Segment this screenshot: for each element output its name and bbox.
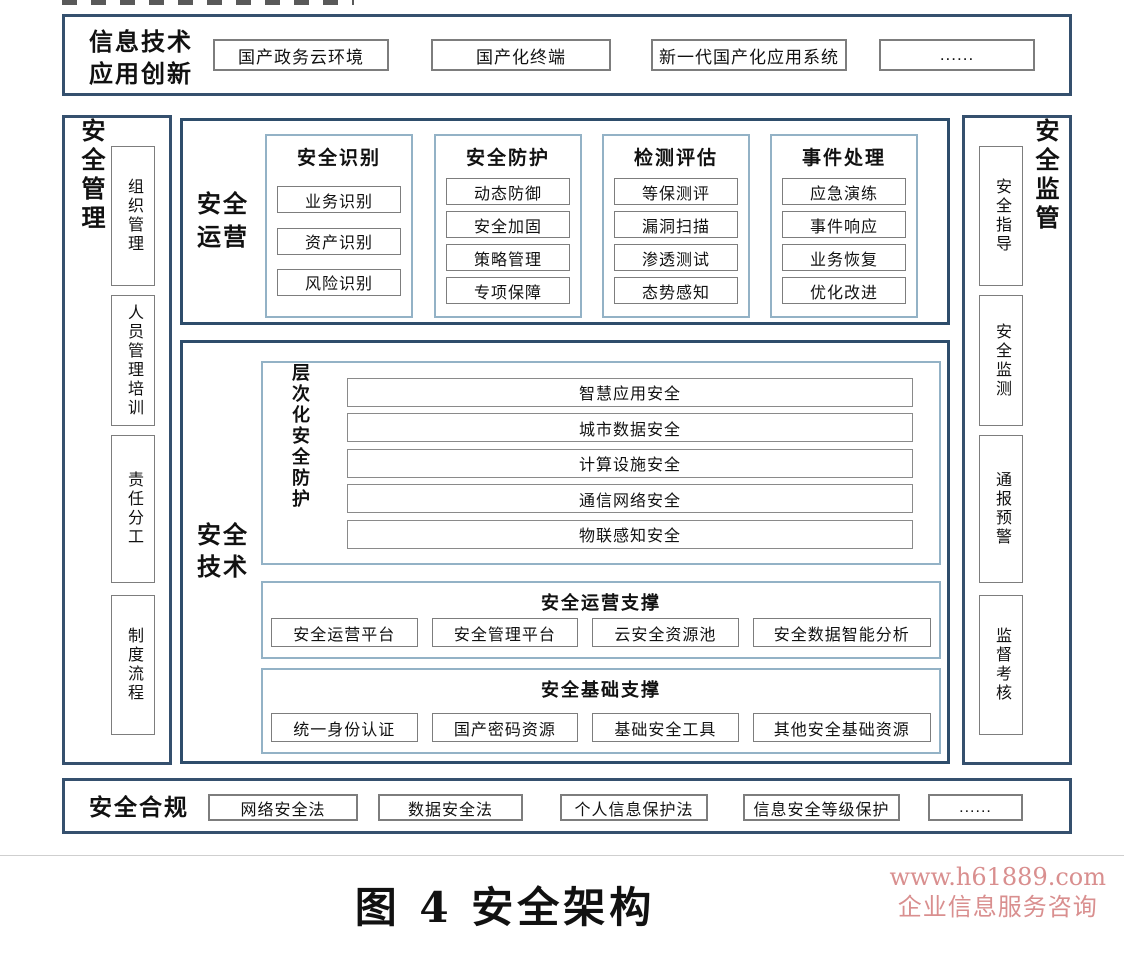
sup-item-monitoring: 安全监测 <box>979 295 1023 426</box>
law-classified-protection: 信息安全等级保护 <box>743 794 900 821</box>
sup-item-guidance: 安全指导 <box>979 146 1023 286</box>
it-item-domestic-terminal: 国产化终端 <box>431 39 611 71</box>
it-item-ellipsis: ...... <box>879 39 1035 71</box>
foundation-item-crypto: 国产密码资源 <box>432 713 579 742</box>
cutoff-text-remnant <box>62 0 354 5</box>
ops-column-assessment: 检测评估 等保测评 漏洞扫描 渗透测试 态势感知 <box>602 134 750 318</box>
ops-item: 等保测评 <box>614 178 738 205</box>
security-operations-panel: 安全 运营 安全识别 业务识别 资产识别 风险识别 安全防护 动态防御 安全加固… <box>180 118 950 325</box>
operation-support-header: 安全运营支撑 <box>263 589 939 615</box>
foundation-support-box: 安全基础支撑 统一身份认证 国产密码资源 基础安全工具 其他安全基础资源 <box>261 668 941 754</box>
mgmt-item-personnel-training: 人员管理培训 <box>111 295 155 426</box>
ops-column-incident: 事件处理 应急演练 事件响应 业务恢复 优化改进 <box>770 134 918 318</box>
ops-item: 风险识别 <box>277 269 401 296</box>
watermark-text: 企业信息服务咨询 <box>890 892 1107 922</box>
security-compliance-band: 安全合规 网络安全法 数据安全法 个人信息保护法 信息安全等级保护 ...... <box>62 778 1072 834</box>
ops-item: 资产识别 <box>277 228 401 255</box>
ops-item: 态势感知 <box>614 277 738 304</box>
layer-network-security: 通信网络安全 <box>347 484 913 513</box>
security-technology-label: 安全 技术 <box>197 343 249 761</box>
ops-item: 动态防御 <box>446 178 570 205</box>
ops-col-header: 安全防护 <box>436 136 580 170</box>
support-item-cloud-pool: 云安全资源池 <box>592 618 739 647</box>
foundation-support-header: 安全基础支撑 <box>263 676 939 702</box>
ops-item: 策略管理 <box>446 244 570 271</box>
ops-item: 业务识别 <box>277 186 401 213</box>
ops-col-items: 等保测评 漏洞扫描 渗透测试 态势感知 <box>604 170 748 316</box>
operation-support-items: 安全运营平台 安全管理平台 云安全资源池 安全数据智能分析 <box>271 618 931 647</box>
mgmt-item-process: 制度流程 <box>111 595 155 735</box>
layered-protection-label: 层次化安全防护 <box>287 363 313 563</box>
ops-item: 安全加固 <box>446 211 570 238</box>
watermark: www.h61889.com 企业信息服务咨询 <box>890 862 1107 922</box>
support-item-mgmt-platform: 安全管理平台 <box>432 618 579 647</box>
ops-col-header: 检测评估 <box>604 136 748 170</box>
ops-item: 业务恢复 <box>782 244 906 271</box>
security-operations-label: 安全 运营 <box>197 121 249 322</box>
it-innovation-label: 信息技术 应用创新 <box>89 27 193 92</box>
it-item-gov-cloud: 国产政务云环境 <box>213 39 389 71</box>
ops-item: 漏洞扫描 <box>614 211 738 238</box>
security-management-label: 安全管理 <box>73 118 108 762</box>
security-architecture-diagram: 信息技术 应用创新 国产政务云环境 国产化终端 新一代国产化应用系统 .....… <box>0 0 1124 955</box>
security-technology-panel: 安全 技术 层次化安全防护 智慧应用安全 城市数据安全 计算设施安全 通信网络安… <box>180 340 950 764</box>
ops-col-items: 动态防御 安全加固 策略管理 专项保障 <box>436 170 580 316</box>
security-management-band: 安全管理 组织管理 人员管理培训 责任分工 制度流程 <box>62 115 172 765</box>
foundation-item-other-resources: 其他安全基础资源 <box>753 713 931 742</box>
ops-column-protection: 安全防护 动态防御 安全加固 策略管理 专项保障 <box>434 134 582 318</box>
law-personal-info: 个人信息保护法 <box>560 794 708 821</box>
it-innovation-band: 信息技术 应用创新 国产政务云环境 国产化终端 新一代国产化应用系统 .....… <box>62 14 1072 96</box>
operation-support-box: 安全运营支撑 安全运营平台 安全管理平台 云安全资源池 安全数据智能分析 <box>261 581 941 659</box>
layered-protection-box: 层次化安全防护 智慧应用安全 城市数据安全 计算设施安全 通信网络安全 物联感知… <box>261 361 941 565</box>
ops-item: 专项保障 <box>446 277 570 304</box>
ops-item: 优化改进 <box>782 277 906 304</box>
foundation-support-items: 统一身份认证 国产密码资源 基础安全工具 其他安全基础资源 <box>271 713 931 742</box>
ops-col-header: 事件处理 <box>772 136 916 170</box>
foundation-item-tools: 基础安全工具 <box>592 713 739 742</box>
layer-city-data-security: 城市数据安全 <box>347 413 913 442</box>
ops-col-header: 安全识别 <box>267 136 411 170</box>
security-supervision-label: 安全监管 <box>1027 118 1062 762</box>
figure-caption: 图 4 安全架构 <box>0 874 1010 935</box>
ops-item: 应急演练 <box>782 178 906 205</box>
support-item-data-analysis: 安全数据智能分析 <box>753 618 931 647</box>
law-network-security: 网络安全法 <box>208 794 358 821</box>
sup-item-alert: 通报预警 <box>979 435 1023 583</box>
law-ellipsis: ...... <box>928 794 1023 821</box>
layer-smart-app-security: 智慧应用安全 <box>347 378 913 407</box>
security-compliance-label: 安全合规 <box>89 792 189 823</box>
ops-item: 事件响应 <box>782 211 906 238</box>
watermark-url: www.h61889.com <box>890 862 1107 892</box>
support-item-ops-platform: 安全运营平台 <box>271 618 418 647</box>
law-data-security: 数据安全法 <box>378 794 523 821</box>
caption-divider <box>0 855 1124 856</box>
layered-protection-bars: 智慧应用安全 城市数据安全 计算设施安全 通信网络安全 物联感知安全 <box>347 371 913 555</box>
layer-computing-facility-security: 计算设施安全 <box>347 449 913 478</box>
ops-col-items: 业务识别 资产识别 风险识别 <box>267 170 411 316</box>
mgmt-item-organization: 组织管理 <box>111 146 155 286</box>
mgmt-item-responsibility: 责任分工 <box>111 435 155 583</box>
layer-iot-sensing-security: 物联感知安全 <box>347 520 913 549</box>
foundation-item-identity: 统一身份认证 <box>271 713 418 742</box>
it-item-new-gen-apps: 新一代国产化应用系统 <box>651 39 847 71</box>
sup-item-assessment: 监督考核 <box>979 595 1023 735</box>
security-supervision-band: 安全监管 安全指导 安全监测 通报预警 监督考核 <box>962 115 1072 765</box>
ops-item: 渗透测试 <box>614 244 738 271</box>
ops-col-items: 应急演练 事件响应 业务恢复 优化改进 <box>772 170 916 316</box>
ops-column-identification: 安全识别 业务识别 资产识别 风险识别 <box>265 134 413 318</box>
